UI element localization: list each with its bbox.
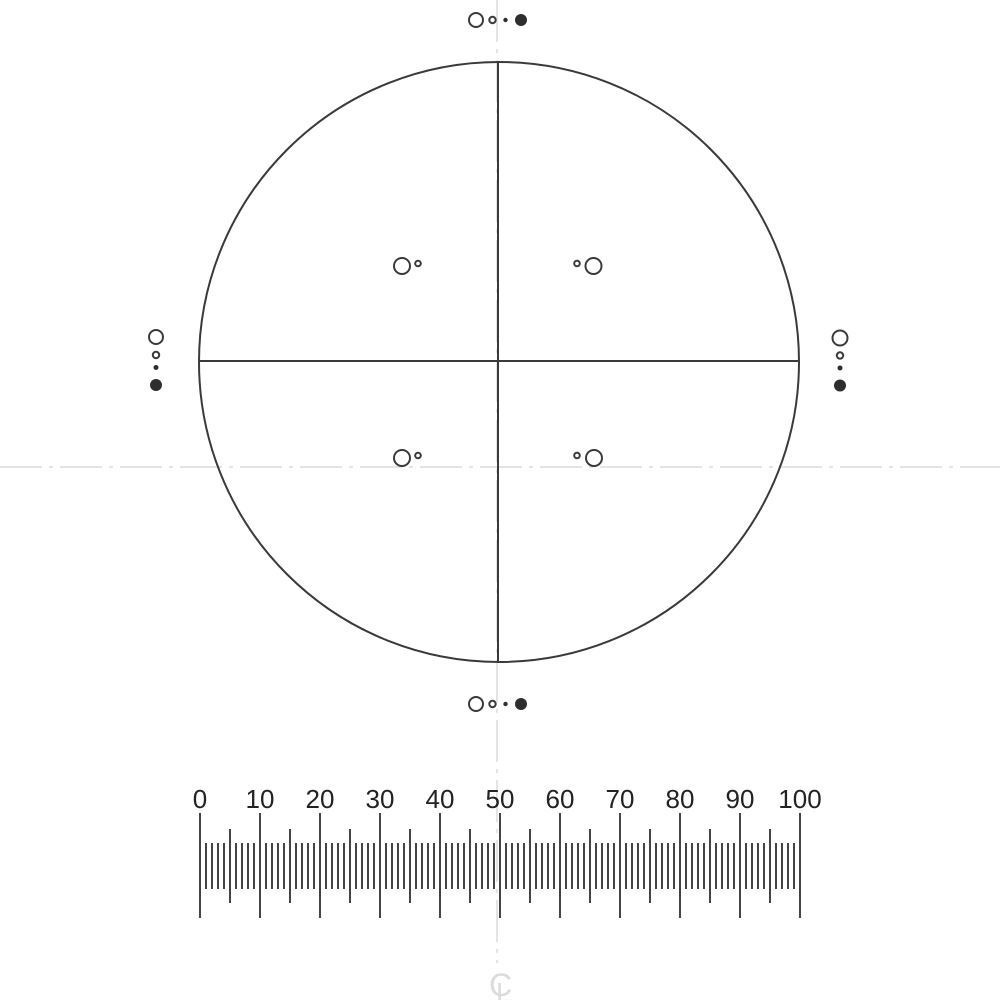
scale-label: 40 xyxy=(426,784,455,814)
scale-label: 10 xyxy=(246,784,275,814)
top-pattern xyxy=(469,13,483,27)
scale-label: 80 xyxy=(666,784,695,814)
bottom-pattern xyxy=(503,702,507,706)
left-pattern xyxy=(153,352,159,358)
bottom-pattern xyxy=(469,697,483,711)
right-pattern xyxy=(834,380,846,392)
scale-label: 20 xyxy=(306,784,335,814)
top-pattern xyxy=(503,18,507,22)
centerline-symbol: L xyxy=(496,977,512,1000)
right-pattern xyxy=(837,352,843,358)
top-pattern xyxy=(515,14,527,26)
upper-right-pair xyxy=(586,258,602,274)
scale-label: 90 xyxy=(726,784,755,814)
bottom-pattern xyxy=(515,698,527,710)
reticle-image: CL0102030405060708090100 xyxy=(0,0,1000,1000)
scale-label: 100 xyxy=(778,784,821,814)
lower-right-pair xyxy=(586,450,602,466)
scale-label: 70 xyxy=(606,784,635,814)
scale-label: 50 xyxy=(486,784,515,814)
lower-left-pair xyxy=(415,453,421,459)
lower-left-pair xyxy=(394,450,410,466)
top-pattern xyxy=(489,17,495,23)
left-pattern xyxy=(154,365,159,370)
left-pattern xyxy=(149,330,163,344)
reticle-drawing: CL0102030405060708090100 xyxy=(0,0,1000,1000)
upper-right-pair xyxy=(574,261,580,267)
scale-label: 0 xyxy=(193,784,207,814)
left-pattern xyxy=(150,379,162,391)
lower-right-pair xyxy=(574,453,580,459)
scale-label: 60 xyxy=(546,784,575,814)
scale-label: 30 xyxy=(366,784,395,814)
bottom-pattern xyxy=(489,701,495,707)
upper-left-pair xyxy=(394,258,410,274)
upper-left-pair xyxy=(415,261,421,267)
right-pattern xyxy=(833,331,848,346)
right-pattern xyxy=(838,366,843,371)
